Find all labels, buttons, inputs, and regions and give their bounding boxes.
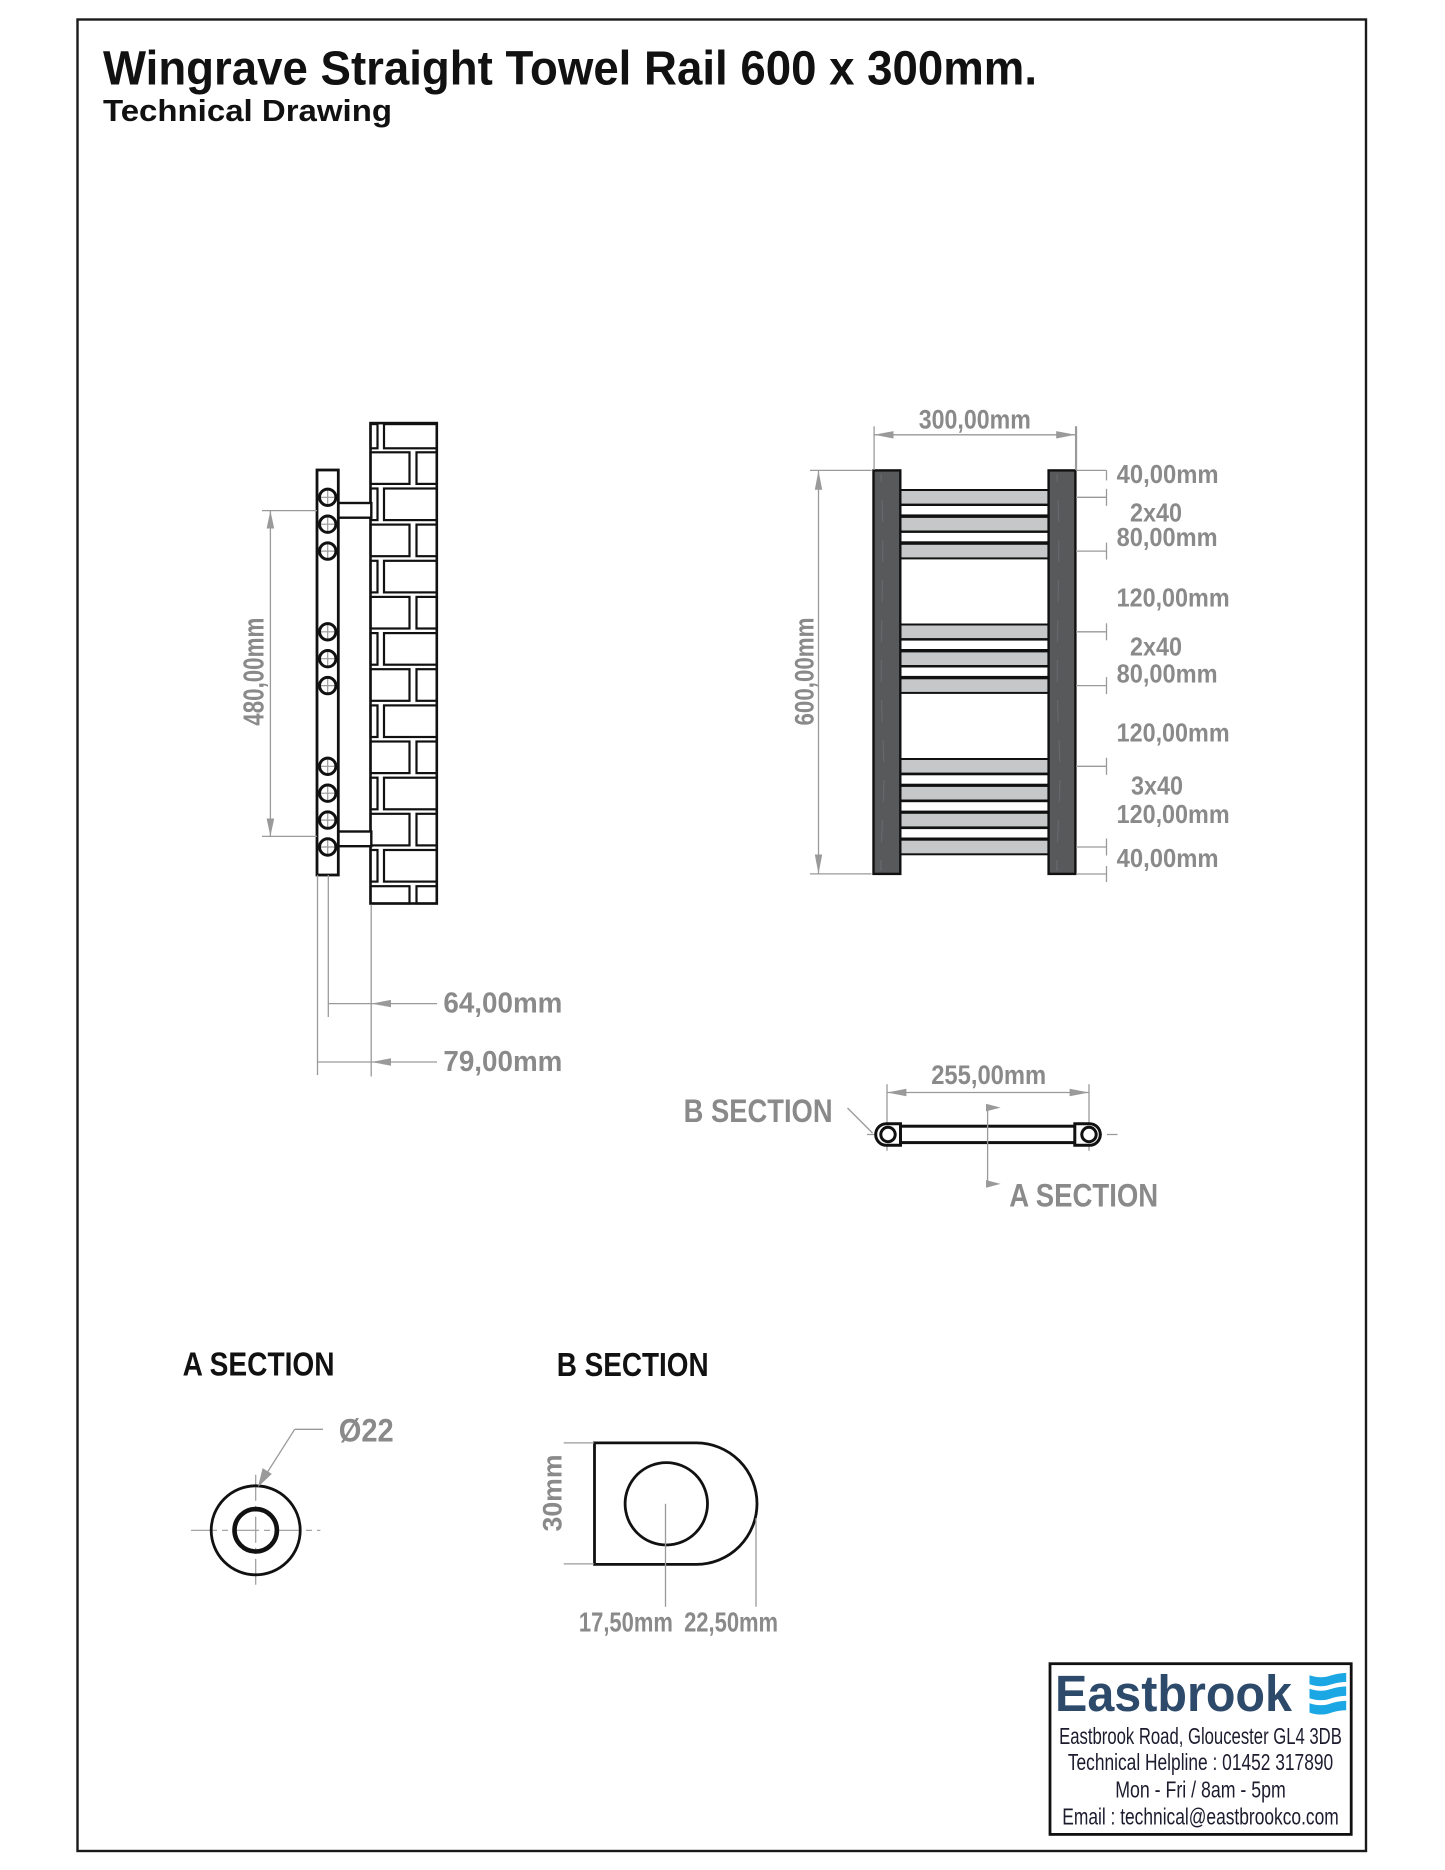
- svg-text:80,00mm: 80,00mm: [1117, 522, 1218, 552]
- svg-text:B SECTION: B SECTION: [557, 1346, 709, 1383]
- svg-text:22,50mm: 22,50mm: [684, 1607, 778, 1638]
- svg-text:B SECTION: B SECTION: [684, 1093, 833, 1129]
- svg-text:Eastbrook: Eastbrook: [1055, 1665, 1293, 1722]
- svg-text:3x40: 3x40: [1131, 771, 1183, 801]
- svg-text:30mm: 30mm: [538, 1455, 568, 1532]
- svg-text:Technical Drawing: Technical Drawing: [103, 93, 392, 128]
- svg-text:17,50mm: 17,50mm: [579, 1607, 673, 1638]
- svg-text:600,00mm: 600,00mm: [790, 618, 820, 726]
- svg-text:Ø22: Ø22: [339, 1413, 394, 1449]
- svg-text:2x40: 2x40: [1130, 632, 1182, 662]
- svg-text:80,00mm: 80,00mm: [1117, 659, 1218, 689]
- svg-text:120,00mm: 120,00mm: [1117, 799, 1230, 829]
- svg-text:40,00mm: 40,00mm: [1117, 459, 1219, 489]
- svg-text:79,00mm: 79,00mm: [443, 1046, 562, 1078]
- svg-text:Email : technical@eastbrookco.: Email : technical@eastbrookco.com: [1062, 1803, 1339, 1829]
- svg-text:300,00mm: 300,00mm: [919, 405, 1031, 435]
- svg-text:64,00mm: 64,00mm: [443, 988, 562, 1020]
- svg-text:120,00mm: 120,00mm: [1117, 582, 1230, 612]
- svg-text:A SECTION: A SECTION: [1009, 1178, 1158, 1214]
- svg-text:255,00mm: 255,00mm: [931, 1060, 1046, 1090]
- svg-text:Mon - Fri / 8am - 5pm: Mon - Fri / 8am - 5pm: [1115, 1777, 1286, 1803]
- svg-text:120,00mm: 120,00mm: [1117, 718, 1230, 748]
- svg-text:Technical Helpline : 01452 317: Technical Helpline : 01452 317890: [1068, 1749, 1333, 1775]
- svg-text:Eastbrook Road, Gloucester GL4: Eastbrook Road, Gloucester GL4 3DB: [1059, 1723, 1342, 1749]
- svg-text:40,00mm: 40,00mm: [1117, 843, 1219, 873]
- svg-text:480,00mm: 480,00mm: [239, 618, 271, 726]
- svg-text:Wingrave Straight Towel Rail 6: Wingrave Straight Towel Rail 600 x 300mm…: [103, 43, 1037, 96]
- svg-text:A SECTION: A SECTION: [183, 1346, 335, 1383]
